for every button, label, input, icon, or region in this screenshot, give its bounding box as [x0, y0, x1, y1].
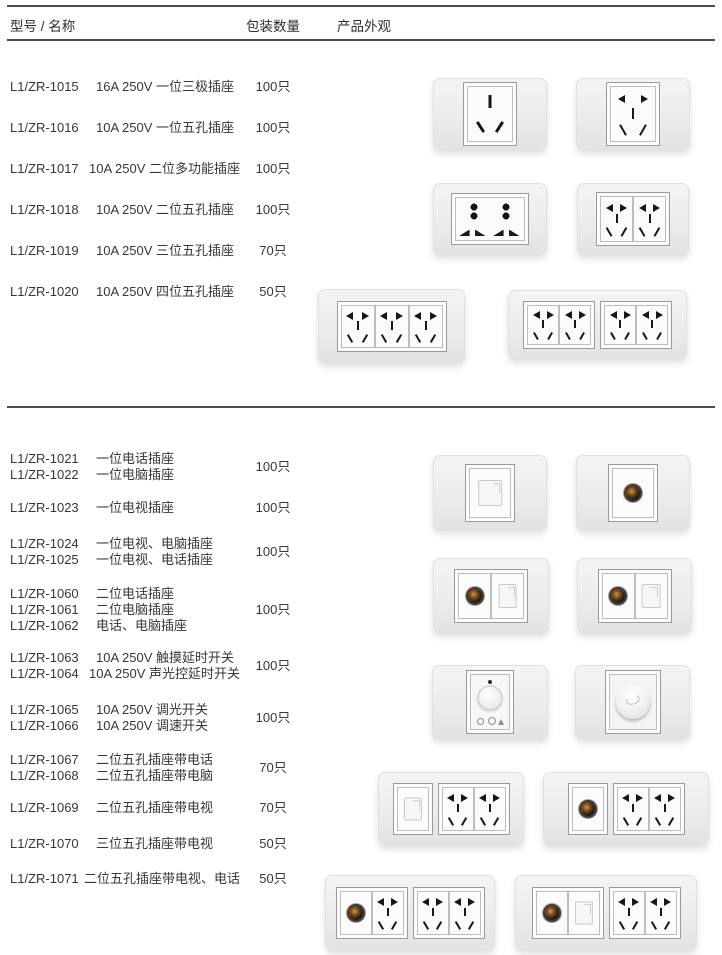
rj-jack-icon — [491, 573, 524, 619]
model-code: L1/ZR-1066 — [10, 718, 96, 734]
pack-quantity: 100只 — [240, 658, 306, 674]
product-group: L1/ZR-101516A 250V 一位三极插座 — [10, 79, 240, 95]
pack-quantity: 50只 — [240, 284, 306, 300]
model-code: L1/ZR-1065 — [10, 702, 96, 718]
pack-quantity: 70只 — [240, 800, 306, 816]
tv-coax-icon — [536, 891, 568, 935]
product-group: L1/ZR-106310A 250V 触摸延时开关 L1/ZR-106410A … — [10, 650, 240, 682]
product-name: 10A 250V 二位多功能插座 — [89, 161, 240, 177]
product-group: L1/ZR-1060二位电话插座 L1/ZR-1061二位电脑插座 L1/ZR-… — [10, 586, 240, 634]
pack-quantity: 100只 — [240, 161, 306, 177]
five-hole-socket-icon — [617, 787, 649, 831]
plate-tv-coax-rj-plus-two-five-hole — [515, 875, 697, 950]
five-hole-socket-icon — [633, 196, 666, 242]
socket-frame — [336, 887, 408, 939]
product-group: L1/ZR-1071二位五孔插座带电视、电话 — [10, 871, 240, 887]
pack-quantity: 70只 — [240, 760, 306, 776]
product-name: 二位五孔插座带电视 — [96, 800, 213, 816]
product-group: L1/ZR-1069二位五孔插座带电视 — [10, 800, 240, 816]
product-group: L1/ZR-106510A 250V 调光开关 L1/ZR-106610A 25… — [10, 702, 240, 734]
rj-jack-icon — [635, 573, 668, 619]
product-name: 10A 250V 触摸延时开关 — [96, 650, 234, 666]
five-hole-socket-icon — [559, 305, 591, 345]
product-name: 三位五孔插座带电视 — [96, 836, 213, 852]
product-group: L1/ZR-102010A 250V 四位五孔插座 — [10, 284, 240, 300]
socket-frame — [568, 783, 608, 835]
socket-frame — [463, 82, 517, 146]
socket-frame — [438, 783, 510, 835]
pack-quantity: 100只 — [240, 459, 306, 475]
product-name: 一位电话插座 — [96, 451, 174, 467]
product-group: L1/ZR-1070三位五孔插座带电视 — [10, 836, 240, 852]
plate-one-gang-rj-jack — [433, 455, 547, 530]
socket-frame — [609, 887, 681, 939]
pack-quantity: 100只 — [240, 602, 306, 618]
product-name: 10A 250V 声光控延时开关 — [89, 666, 240, 682]
product-group: L1/ZR-1021一位电话插座 L1/ZR-1022一位电脑插座 — [10, 451, 240, 483]
five-hole-socket-icon — [600, 196, 633, 242]
model-code: L1/ZR-1015 — [10, 79, 96, 95]
socket-frame — [454, 569, 528, 623]
pack-quantity: 100只 — [240, 202, 306, 218]
pack-quantity: 50只 — [240, 871, 306, 887]
product-name: 二位电脑插座 — [96, 602, 174, 618]
product-name: 10A 250V 二位五孔插座 — [96, 202, 234, 218]
product-group: L1/ZR-101910A 250V 三位五孔插座 — [10, 243, 240, 259]
pack-quantity: 100只 — [240, 120, 306, 136]
model-code: L1/ZR-1061 — [10, 602, 96, 618]
product-name: 10A 250V 调光开关 — [96, 702, 208, 718]
five-hole-socket-icon — [613, 891, 645, 935]
model-code: L1/ZR-1068 — [10, 768, 96, 784]
product-name: 10A 250V 一位五孔插座 — [96, 120, 234, 136]
pack-quantity: 100只 — [240, 544, 306, 560]
socket-frame — [337, 301, 447, 352]
five-hole-socket-icon — [375, 305, 409, 348]
model-code: L1/ZR-1016 — [10, 120, 96, 136]
product-group: L1/ZR-101810A 250V 二位五孔插座 — [10, 202, 240, 218]
product-group: L1/ZR-101710A 250V 二位多功能插座 — [10, 161, 240, 177]
model-code: L1/ZR-1067 — [10, 752, 96, 768]
plate-rj-plus-two-five-hole — [378, 772, 524, 845]
five-hole-socket-icon — [604, 305, 636, 345]
five-hole-socket-icon — [610, 86, 656, 142]
socket-frame — [600, 301, 672, 349]
five-hole-socket-icon — [527, 305, 559, 345]
socket-frame — [613, 783, 685, 835]
socket-frame — [393, 783, 433, 835]
plate-two-gang-multifunction — [433, 183, 547, 255]
plate-one-gang-three-pin — [433, 78, 547, 150]
catalog-page: 型号 / 名称 包装数量 产品外观 L1/ZR-101516A 250V 一位三… — [0, 0, 722, 955]
pack-quantity: 70只 — [240, 243, 306, 259]
five-hole-socket-icon — [636, 305, 668, 345]
five-hole-socket-icon — [449, 891, 481, 935]
model-code: L1/ZR-1064 — [10, 666, 89, 682]
rj-jack-icon — [469, 468, 511, 518]
plate-tv-coax-plus-rj — [433, 558, 549, 633]
col-header-model-name: 型号 / 名称 — [10, 15, 75, 35]
product-name: 二位电话插座 — [96, 586, 174, 602]
product-name: 10A 250V 调速开关 — [96, 718, 208, 734]
header-rule — [7, 39, 715, 41]
rj-jack-icon — [568, 891, 600, 935]
model-code: L1/ZR-1021 — [10, 451, 96, 467]
plate-tv-coax-plus-three-five-hole — [325, 875, 495, 950]
plate-tv-coax-plus-two-five-hole — [543, 772, 709, 845]
product-name: 二位五孔插座带电脑 — [96, 768, 213, 784]
plate-tv-coax-plus-rj — [577, 558, 692, 633]
product-name: 电话、电脑插座 — [96, 618, 187, 634]
three-pin-socket-icon — [467, 86, 513, 142]
plate-one-gang-tv-coax — [576, 455, 690, 530]
five-hole-socket-icon — [341, 305, 375, 348]
pack-quantity: 100只 — [240, 710, 306, 726]
product-name: 二位五孔插座带电视、电话 — [84, 871, 240, 887]
five-hole-socket-icon — [409, 305, 443, 348]
product-name: 10A 250V 四位五孔插座 — [96, 284, 234, 300]
five-hole-socket-icon — [645, 891, 677, 935]
model-code: L1/ZR-1017 — [10, 161, 89, 177]
model-code: L1/ZR-1069 — [10, 800, 96, 816]
tv-coax-icon — [612, 468, 654, 518]
model-code: L1/ZR-1062 — [10, 618, 96, 634]
product-group: L1/ZR-1067二位五孔插座带电话 L1/ZR-1068二位五孔插座带电脑 — [10, 752, 240, 784]
rotary-knob-icon — [609, 674, 657, 730]
plate-two-gang-five-hole — [577, 183, 689, 255]
socket-frame — [413, 887, 485, 939]
socket-frame — [451, 193, 529, 245]
five-hole-socket-icon — [474, 787, 506, 831]
plate-one-gang-five-hole — [576, 78, 690, 150]
pack-quantity: 100只 — [240, 500, 306, 516]
plate-rotary-dimmer-knob — [575, 665, 690, 739]
five-hole-socket-icon — [372, 891, 404, 935]
model-code: L1/ZR-1070 — [10, 836, 96, 852]
model-code: L1/ZR-1071 — [10, 871, 84, 887]
model-code: L1/ZR-1024 — [10, 536, 96, 552]
socket-frame — [523, 301, 595, 349]
model-code: L1/ZR-1063 — [10, 650, 96, 666]
product-group: L1/ZR-1023一位电视插座 — [10, 500, 240, 516]
model-code: L1/ZR-1023 — [10, 500, 96, 516]
five-hole-socket-icon — [649, 787, 681, 831]
top-rule — [7, 5, 715, 7]
tv-coax-icon — [458, 573, 491, 619]
socket-frame — [465, 464, 515, 522]
product-name: 二位五孔插座带电话 — [96, 752, 213, 768]
multifunction-socket-icon — [455, 197, 525, 241]
rj-jack-icon — [397, 787, 429, 831]
socket-frame — [466, 670, 514, 734]
five-hole-socket-icon — [442, 787, 474, 831]
pack-quantity: 50只 — [240, 836, 306, 852]
model-code: L1/ZR-1060 — [10, 586, 96, 602]
product-group: L1/ZR-101610A 250V 一位五孔插座 — [10, 120, 240, 136]
touch-delay-switch-icon — [470, 674, 510, 730]
product-group: L1/ZR-1024一位电视、电脑插座 L1/ZR-1025一位电视、电话插座 — [10, 536, 240, 568]
socket-frame — [608, 464, 658, 522]
product-name: 16A 250V 一位三极插座 — [96, 79, 234, 95]
product-name: 一位电视插座 — [96, 500, 174, 516]
model-code: L1/ZR-1020 — [10, 284, 96, 300]
col-header-appearance: 产品外观 — [337, 15, 391, 35]
product-name: 一位电视、电话插座 — [96, 552, 213, 568]
tv-coax-icon — [340, 891, 372, 935]
model-code: L1/ZR-1019 — [10, 243, 96, 259]
tv-coax-icon — [572, 787, 604, 831]
socket-frame — [596, 192, 670, 246]
section-divider — [7, 406, 715, 408]
socket-frame — [532, 887, 604, 939]
product-name: 10A 250V 三位五孔插座 — [96, 243, 234, 259]
col-header-quantity: 包装数量 — [246, 15, 300, 35]
model-code: L1/ZR-1025 — [10, 552, 96, 568]
model-code: L1/ZR-1018 — [10, 202, 96, 218]
product-name: 一位电脑插座 — [96, 467, 174, 483]
socket-frame — [606, 82, 660, 146]
socket-frame — [598, 569, 672, 623]
product-name: 一位电视、电脑插座 — [96, 536, 213, 552]
tv-coax-icon — [602, 573, 635, 619]
plate-touch-delay-switch — [432, 665, 548, 739]
model-code: L1/ZR-1022 — [10, 467, 96, 483]
plate-three-gang-five-hole — [318, 289, 465, 363]
pack-quantity: 100只 — [240, 79, 306, 95]
plate-four-gang-five-hole — [508, 290, 687, 359]
five-hole-socket-icon — [417, 891, 449, 935]
socket-frame — [605, 670, 661, 734]
